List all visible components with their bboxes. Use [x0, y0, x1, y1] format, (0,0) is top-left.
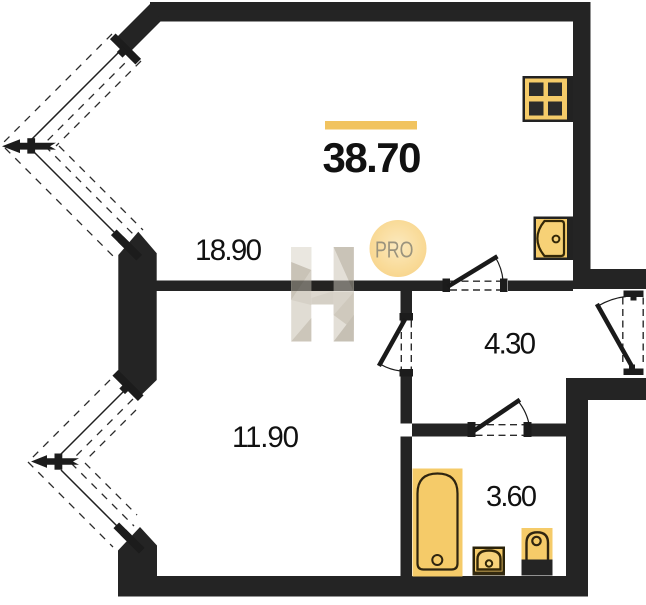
svg-text:38.70: 38.70 [323, 134, 422, 181]
svg-text:18.90: 18.90 [195, 234, 262, 267]
svg-text:4.30: 4.30 [484, 328, 536, 361]
svg-text:3.60: 3.60 [486, 481, 537, 513]
svg-text:11.90: 11.90 [232, 421, 299, 454]
svg-text:PRO: PRO [375, 237, 414, 263]
